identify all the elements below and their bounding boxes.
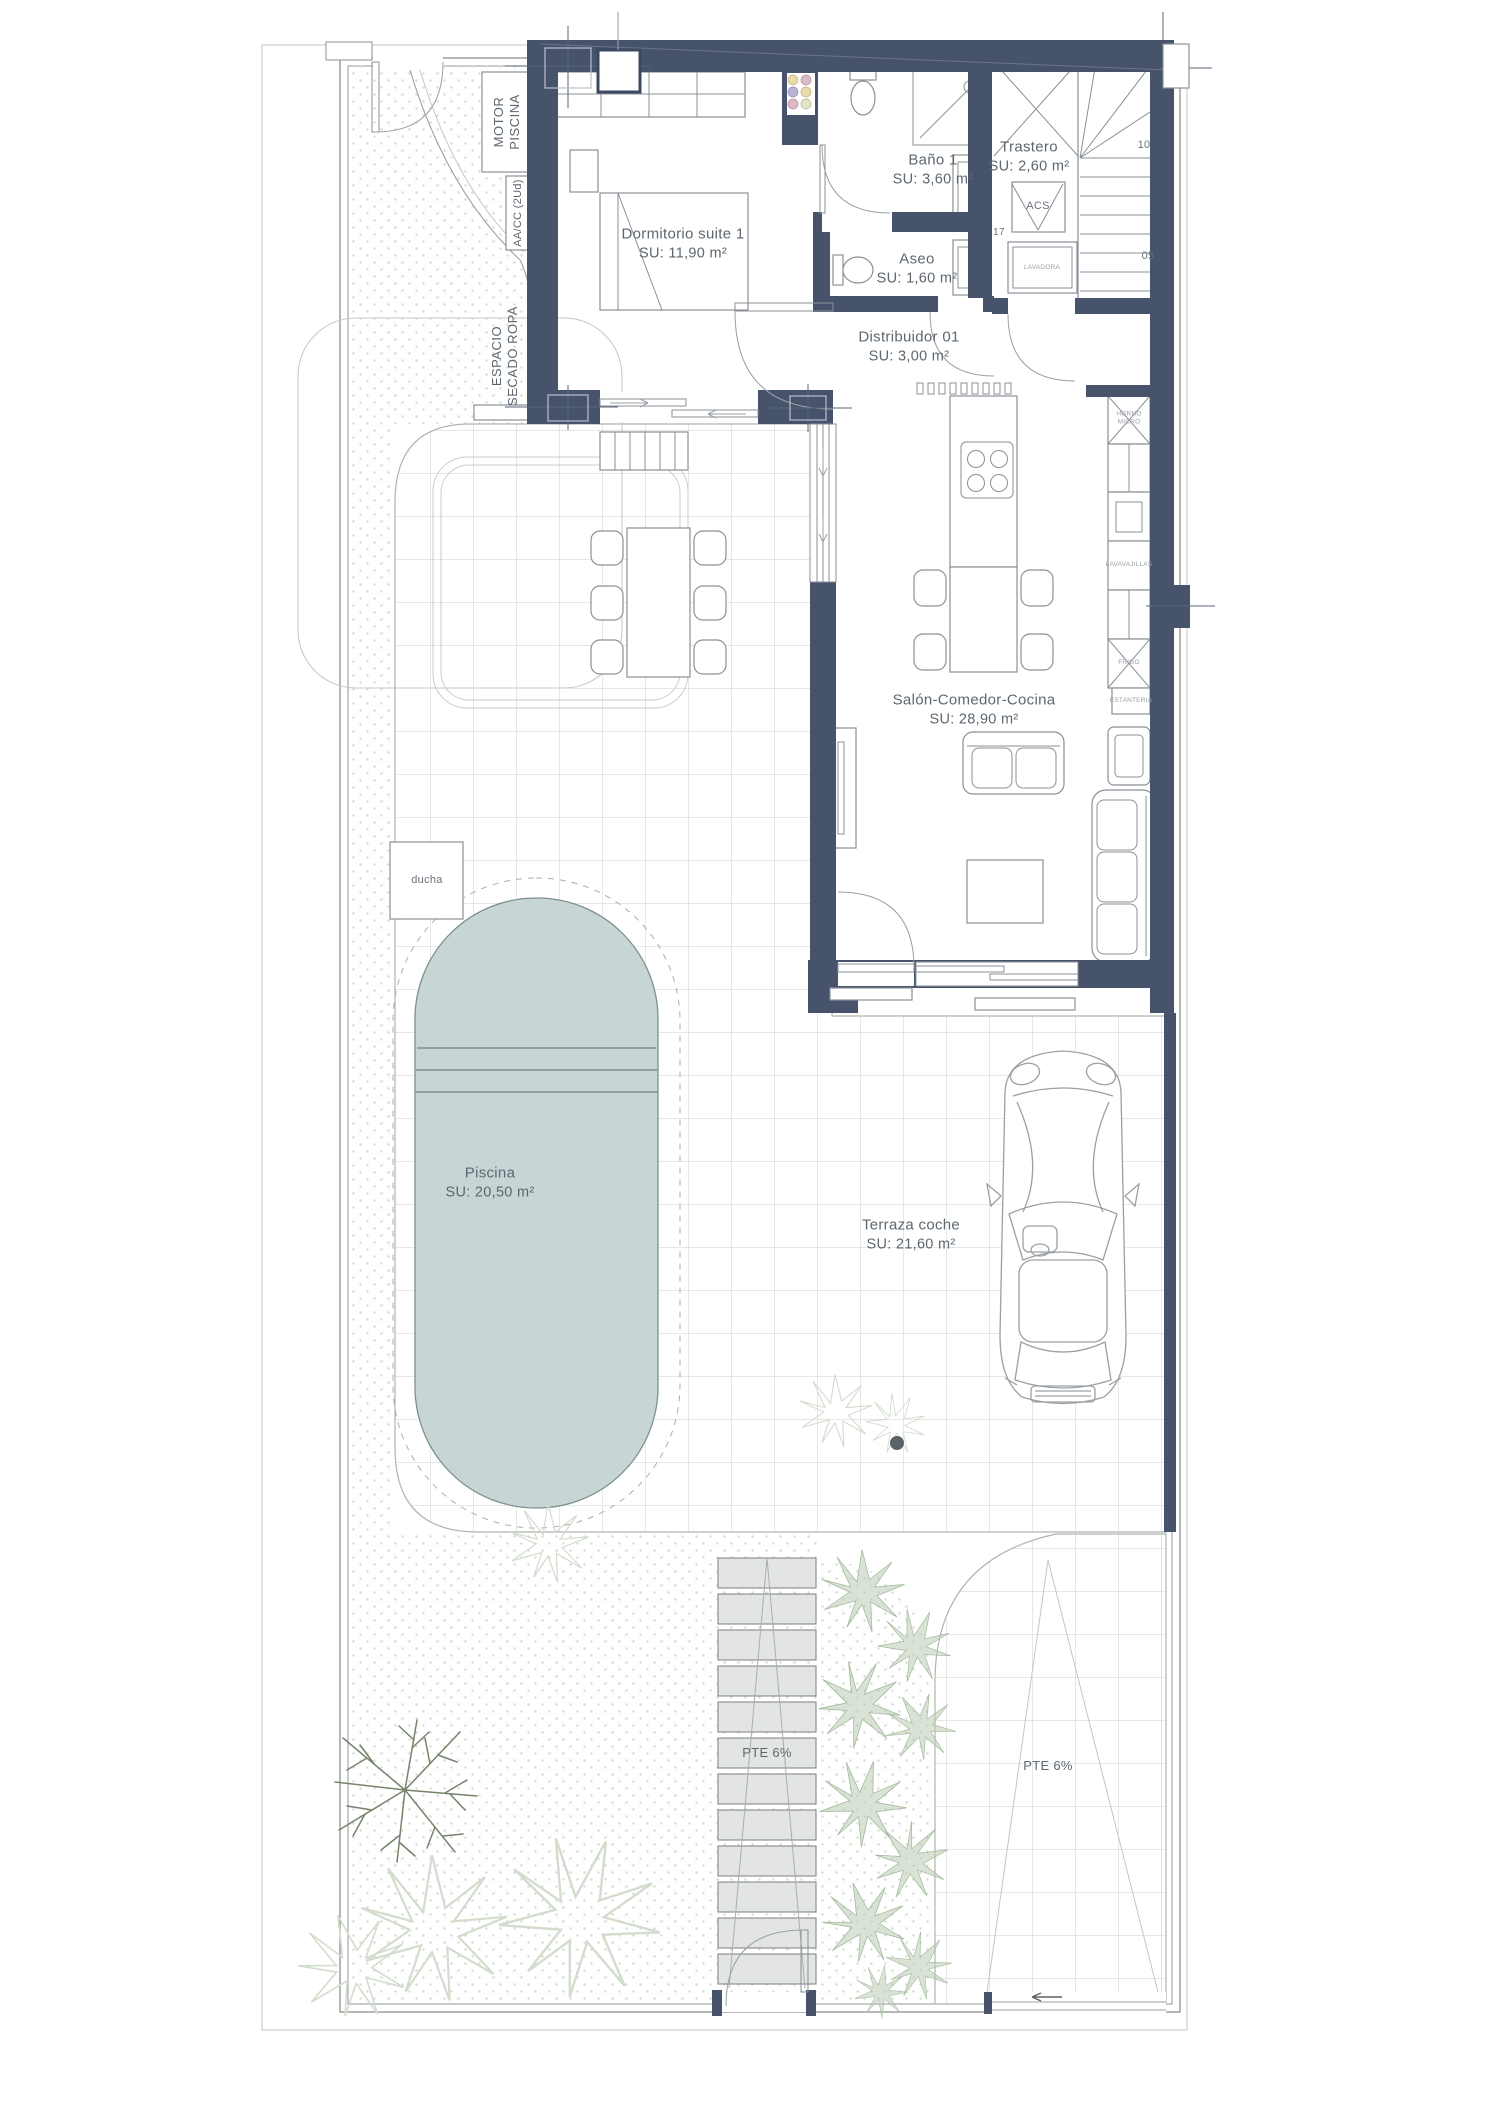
step10-text: 10 <box>1138 139 1151 153</box>
room-label-terraza: Terraza coche SU: 21,60 m² <box>862 1217 960 1254</box>
room-area: SU: 11,90 m² <box>639 244 727 262</box>
motor-line2: PISCINA <box>507 94 523 150</box>
terrace-table <box>627 528 690 677</box>
label-lavavajillas: LAVAVAJILLAS <box>1106 561 1153 569</box>
estanteria-text: ESTANTERIA <box>1110 697 1152 705</box>
room-area: SU: 1,60 m² <box>877 269 958 287</box>
stair-number-10: 10 <box>1138 139 1151 153</box>
room-label-salon: Salón-Comedor-Cocina SU: 28,90 m² <box>893 692 1056 729</box>
label-frigo: FRIGO <box>1118 659 1140 667</box>
pte-driveway-text: PTE 6% <box>1023 1758 1072 1774</box>
room-name: Salón-Comedor-Cocina <box>893 692 1056 711</box>
motor-line1: MOTOR <box>491 97 507 148</box>
toilet-aseo <box>843 257 873 283</box>
room-label-trastero: Trastero SU: 2,60 m² <box>989 139 1070 176</box>
label-acs: ACS <box>1026 200 1050 214</box>
floor-plan: Dormitorio suite 1 SU: 11,90 m² Baño 1 S… <box>0 0 1500 2123</box>
room-label-bano1: Baño 1 SU: 3,60 m² <box>893 152 974 189</box>
bedroom-furniture <box>553 72 748 310</box>
room-name: Trastero <box>1000 139 1058 158</box>
lavavajillas-text: LAVAVAJILLAS <box>1106 561 1153 569</box>
room-name: Aseo <box>899 251 934 270</box>
label-pte-ramp: PTE 6% <box>742 1745 791 1761</box>
label-ducha: ducha <box>411 874 442 888</box>
room-label-piscina: Piscina SU: 20,50 m² <box>445 1165 534 1202</box>
room-area: SU: 3,00 m² <box>869 347 950 365</box>
mosaic-column <box>786 72 816 116</box>
plan-drawing <box>0 0 1500 2123</box>
room-area: SU: 21,60 m² <box>866 1235 955 1253</box>
pte-ramp-text: PTE 6% <box>742 1745 791 1761</box>
horno-line1: HORNO <box>1116 411 1141 419</box>
armchair <box>1108 727 1150 785</box>
label-aacc: AA/CC (2Ud) <box>512 179 526 246</box>
label-estanteria: ESTANTERIA <box>1110 697 1152 705</box>
room-name: Dormitorio suite 1 <box>622 226 745 245</box>
coffee-table <box>967 860 1043 923</box>
label-espacio-secado: ESPACIO SECADO ROPA <box>489 306 522 406</box>
room-area: SU: 20,50 m² <box>445 1183 534 1201</box>
room-name: Baño 1 <box>908 152 957 171</box>
room-label-dormitorio: Dormitorio suite 1 SU: 11,90 m² <box>622 226 745 263</box>
nightstand <box>570 150 598 192</box>
pool-water <box>415 898 658 1508</box>
label-lavadora: LAVADORA <box>1024 264 1060 272</box>
kitchen <box>914 383 1150 714</box>
room-name: Distribuidor 01 <box>858 329 959 348</box>
bano-door-swing <box>822 145 890 213</box>
room-name: Terraza coche <box>862 1217 960 1236</box>
room-area: SU: 28,90 m² <box>929 710 1018 728</box>
stairs-drawing <box>1078 62 1150 308</box>
ducha-text: ducha <box>411 874 442 888</box>
room-area: SU: 2,60 m² <box>989 157 1070 175</box>
espacio-line2: SECADO ROPA <box>505 306 521 406</box>
label-horno-micro: HORNO MICRO <box>1116 411 1141 428</box>
frigo-text: FRIGO <box>1118 659 1140 667</box>
aacc-text: AA/CC (2Ud) <box>512 179 526 246</box>
label-motor-piscina: MOTOR PISCINA <box>491 94 524 150</box>
step17-text: 17 <box>993 227 1005 240</box>
loveseat <box>963 732 1064 794</box>
acs-text: ACS <box>1026 200 1050 214</box>
room-area: SU: 3,60 m² <box>893 170 974 188</box>
entrance-door-swing <box>838 892 914 968</box>
espacio-line1: ESPACIO <box>489 326 505 386</box>
terrace-drain <box>890 1436 904 1450</box>
step05-text: 05 <box>1142 250 1155 264</box>
lavadora-text: LAVADORA <box>1024 264 1060 272</box>
horno-line2: MICRO <box>1118 419 1141 427</box>
room-label-distribuidor: Distribuidor 01 SU: 3,00 m² <box>858 329 959 366</box>
toilet-bano1 <box>851 81 875 115</box>
trastero-equipment <box>994 62 1078 293</box>
stairs-door-swing <box>1008 314 1075 381</box>
room-name: Piscina <box>465 1165 515 1184</box>
stair-number-17: 17 <box>993 227 1005 240</box>
dining-table <box>950 567 1017 672</box>
pool <box>393 878 680 1528</box>
label-pte-driveway: PTE 6% <box>1023 1758 1072 1774</box>
stair-number-05: 05 <box>1142 250 1155 264</box>
car <box>987 1051 1139 1404</box>
living-room-furniture <box>833 727 1156 962</box>
room-label-aseo: Aseo SU: 1,60 m² <box>877 251 958 288</box>
